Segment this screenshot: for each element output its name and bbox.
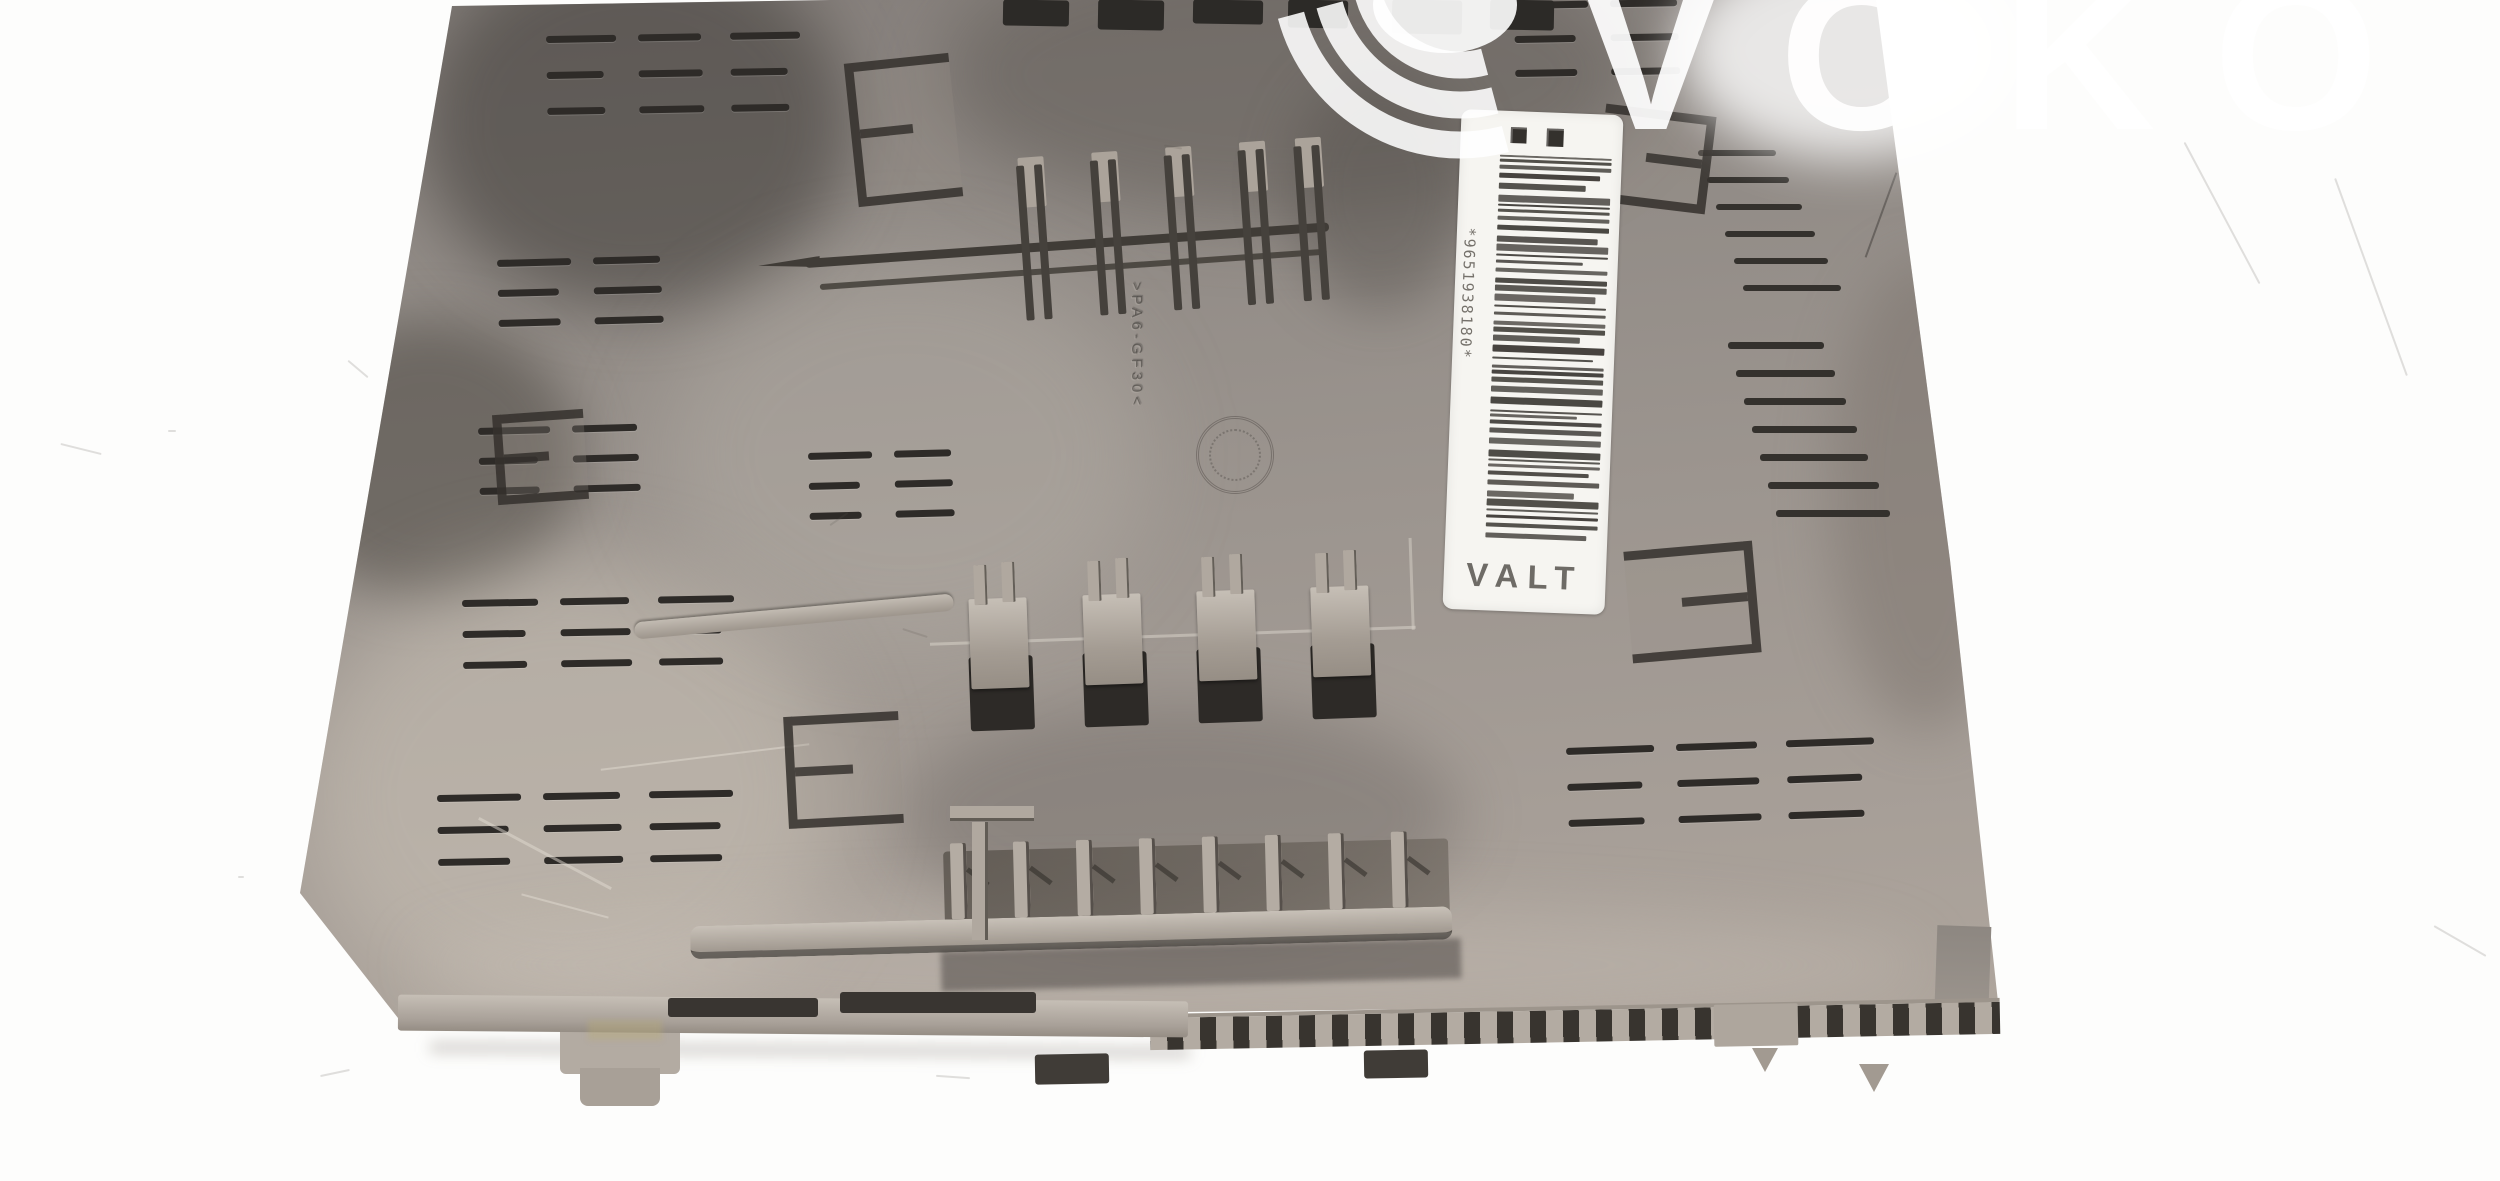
vent-slot — [639, 69, 703, 77]
top-edge-opening — [1098, 0, 1165, 31]
barcode-bar — [1493, 334, 1581, 343]
latch-row — [927, 529, 1434, 751]
vent-slot — [731, 68, 788, 76]
latch-prong — [1115, 558, 1129, 598]
vent-slot — [1569, 817, 1645, 827]
barcode-bar — [1491, 376, 1603, 385]
vent-slot — [561, 628, 631, 636]
clip-hook-bar — [860, 124, 913, 138]
dirt-smudge — [1830, 260, 2020, 730]
bracket — [972, 822, 988, 940]
latch-prong — [1201, 557, 1215, 597]
mounting-foot-step — [580, 1068, 660, 1106]
stamp-ring — [1209, 429, 1261, 481]
latch-prong — [1087, 561, 1101, 601]
latch-prong — [1343, 550, 1357, 590]
vent-slot — [650, 822, 721, 830]
latch-tab — [1082, 593, 1143, 685]
vent-slot — [543, 792, 620, 800]
barcode-bar — [1486, 514, 1598, 521]
barcode-bar — [1494, 311, 1606, 318]
vent-slot — [658, 595, 734, 603]
clip-hook — [844, 53, 963, 207]
dust-speck — [60, 443, 101, 455]
edge-opening — [668, 998, 818, 1017]
barcode-bar — [1486, 522, 1598, 530]
dust-speck — [238, 876, 244, 878]
vent-slot — [547, 107, 605, 115]
latch-prong — [973, 565, 987, 605]
barcode-bar — [1486, 508, 1598, 514]
edge-opening — [1035, 1053, 1110, 1084]
barcode-bar — [1491, 385, 1603, 395]
top-edge-opening — [1003, 0, 1069, 27]
vent-slot — [1677, 777, 1759, 787]
vent-slot — [499, 318, 561, 327]
barcode-bar — [1494, 304, 1606, 310]
vent-slot — [1676, 741, 1757, 751]
bracket — [950, 806, 1034, 821]
dust-speck — [347, 360, 368, 378]
ridge-line — [1409, 538, 1415, 630]
vent-slot — [1788, 810, 1864, 820]
dust-speck — [936, 1075, 970, 1079]
connector-prong — [1202, 836, 1220, 912]
vent-slot — [560, 597, 629, 605]
barcode-number: *9651938180* — [1450, 227, 1479, 507]
vent-slot — [1786, 737, 1874, 747]
watermark-logo-icon — [1250, 0, 1590, 210]
barcode-bar — [1489, 437, 1601, 447]
vent-slot — [894, 449, 951, 457]
side-vent-slot — [1752, 426, 1857, 433]
side-vent-slot — [1728, 342, 1824, 349]
vent-slot — [638, 33, 701, 41]
clip-hook — [783, 711, 904, 829]
vent-slot — [546, 35, 616, 43]
barcode-bar — [1488, 470, 1589, 478]
vent-slot — [1566, 745, 1654, 755]
vent-slot — [639, 105, 704, 113]
side-vent-slot — [1768, 482, 1879, 489]
vent-slot — [1567, 781, 1642, 791]
vent-slot — [730, 32, 800, 40]
dust-speck — [2334, 178, 2408, 376]
vent-slot — [649, 790, 733, 798]
vent-slot — [463, 661, 527, 669]
barcode-bar — [1488, 463, 1600, 470]
latch-tab — [1196, 589, 1257, 681]
connector-prong — [1139, 838, 1157, 914]
barcode-bar — [1494, 293, 1595, 304]
vent-slot — [463, 630, 526, 638]
side-vent-slot — [1725, 231, 1815, 237]
side-vent-slot — [1743, 285, 1841, 291]
vent-slot — [561, 659, 632, 667]
side-vent-slot — [1716, 204, 1802, 210]
vent-slot — [544, 824, 622, 832]
clip-hook-bar — [504, 451, 550, 463]
barcode-bar — [1497, 216, 1609, 224]
latch-tab — [968, 597, 1029, 689]
side-vent-slot — [1776, 510, 1890, 517]
barcode-bar — [1486, 498, 1598, 509]
barcode-bar — [1497, 225, 1609, 234]
latch-prong — [1001, 562, 1015, 602]
connector-prong — [1391, 831, 1409, 907]
connector-prong — [1265, 835, 1283, 911]
barcode-bar — [1485, 532, 1586, 541]
clip-hook-bar — [795, 764, 854, 776]
connector-prong — [1013, 841, 1031, 917]
barcode-bar — [1496, 254, 1608, 260]
embossed-date-stamp — [1196, 416, 1274, 494]
barcode-bar — [1492, 344, 1604, 355]
clip-hook — [492, 409, 589, 505]
barcode-bar — [1492, 356, 1593, 362]
barcode-bar — [1490, 396, 1602, 407]
barcode-bar — [1489, 427, 1601, 436]
vent-slot — [731, 104, 789, 112]
scratch-mark — [1865, 172, 1898, 257]
vent-slot — [547, 71, 604, 79]
stain — [588, 1020, 662, 1040]
latch-prong — [1229, 554, 1243, 594]
connector-prong — [950, 843, 968, 919]
side-vent-slot — [1744, 398, 1846, 405]
clip-hook-bar — [1682, 592, 1749, 607]
vent-slot — [1678, 813, 1761, 823]
photo-background: >PA6-GF30< *9651938180* VALT VOKO — [0, 0, 2500, 1181]
latch-prong — [1315, 553, 1329, 593]
barcode-bar — [1496, 260, 1583, 266]
label-code-text: VALT — [1443, 555, 1606, 599]
dust-speck — [2434, 925, 2487, 957]
vent-slot — [462, 599, 538, 607]
barcode — [1485, 155, 1612, 557]
vent-slot — [437, 794, 521, 802]
edge-foot — [1752, 1048, 1778, 1072]
barcode-bar — [1490, 419, 1602, 427]
connector-prong — [1076, 840, 1094, 916]
edge-tab — [1714, 1003, 1799, 1046]
vent-slot — [595, 316, 664, 325]
latch-tab — [1310, 585, 1371, 677]
edge-opening — [840, 992, 1036, 1013]
side-vent-slot — [1760, 454, 1868, 461]
barcode-bar — [1490, 413, 1577, 419]
dust-speck — [320, 1069, 350, 1077]
corner-step — [1935, 925, 1992, 1005]
edge-opening — [1364, 1049, 1428, 1078]
connector-prong — [1328, 833, 1346, 909]
dust-speck — [168, 430, 176, 432]
watermark-text: VOKO — [1580, 0, 2436, 178]
side-vent-slot — [1736, 370, 1835, 377]
vent-slot — [659, 657, 723, 665]
connector-comb — [688, 828, 1472, 1018]
vent-slot — [498, 288, 559, 297]
barcode-bar — [1487, 479, 1599, 488]
vent-slot — [1787, 774, 1862, 784]
clip-hook — [1623, 541, 1761, 664]
vent-slot — [438, 858, 510, 866]
barcode-bar — [1496, 244, 1608, 255]
edge-foot — [1859, 1064, 1889, 1092]
vent-slot — [809, 482, 860, 490]
side-vent-slot — [1734, 258, 1828, 264]
barcode-bar — [1495, 267, 1607, 275]
